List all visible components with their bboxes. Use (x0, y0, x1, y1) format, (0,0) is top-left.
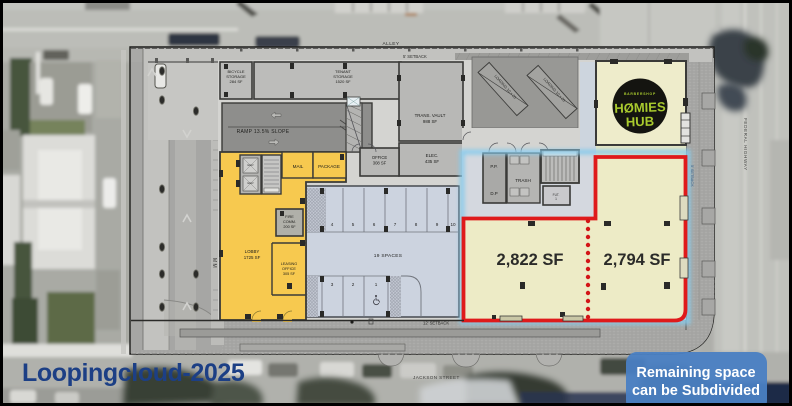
svg-text:OFFICE: OFFICE (372, 155, 388, 160)
svg-text:TRANS. VAULT: TRANS. VAULT (415, 113, 446, 118)
svg-text:308 SF: 308 SF (373, 161, 387, 166)
svg-text:can be Subdivided: can be Subdivided (632, 383, 760, 399)
svg-text:435 SF: 435 SF (425, 159, 439, 164)
svg-text:2,794 SF: 2,794 SF (604, 251, 671, 269)
svg-text:10: 10 (450, 222, 456, 227)
svg-text:MAIL: MAIL (293, 164, 304, 169)
svg-text:OFFICE: OFFICE (282, 267, 296, 271)
svg-text:305 SF: 305 SF (283, 272, 296, 276)
svg-text:5' SETBACK: 5' SETBACK (690, 165, 694, 187)
svg-text:RAMP 13.5% SLOPE: RAMP 13.5% SLOPE (237, 129, 290, 135)
svg-text:COMM.: COMM. (283, 220, 296, 224)
svg-text:1520 SF: 1520 SF (335, 79, 351, 84)
svg-text:200 SF: 200 SF (283, 225, 296, 229)
svg-text:4: 4 (331, 222, 334, 227)
svg-text:ELEV: ELEV (247, 182, 254, 185)
svg-text:ELEC.: ELEC. (426, 153, 439, 158)
svg-text:BARBERSHOP: BARBERSHOP (624, 92, 656, 96)
svg-text:TRASH: TRASH (515, 178, 531, 183)
svg-text:P.P.: P.P. (490, 164, 497, 169)
svg-text:1: 1 (555, 197, 557, 201)
svg-text:7: 7 (394, 222, 397, 227)
svg-text:LOBBY: LOBBY (245, 249, 260, 254)
svg-text:988 SF: 988 SF (423, 119, 437, 124)
svg-text:Loopingcloud-2025: Loopingcloud-2025 (22, 359, 245, 387)
svg-text:M M: M M (211, 258, 217, 268)
svg-text:D.P: D.P (490, 191, 497, 196)
svg-text:6: 6 (373, 222, 376, 227)
svg-text:LEASING: LEASING (281, 262, 298, 266)
svg-text:9: 9 (436, 222, 439, 227)
svg-text:3: 3 (331, 282, 334, 287)
svg-text:JACKSON STREET: JACKSON STREET (413, 375, 460, 380)
svg-text:Remaining space: Remaining space (636, 365, 755, 381)
svg-text:284 SF: 284 SF (230, 79, 243, 84)
svg-text:5: 5 (352, 222, 355, 227)
svg-text:ELEV: ELEV (247, 164, 254, 167)
svg-text:ALLEY: ALLEY (383, 41, 400, 47)
svg-text:HUB: HUB (626, 114, 655, 130)
svg-text:1: 1 (375, 282, 378, 287)
svg-text:8: 8 (415, 222, 418, 227)
svg-text:FIRE: FIRE (285, 215, 294, 219)
svg-text:2,822 SF: 2,822 SF (497, 251, 564, 269)
svg-text:5' SETBACK: 5' SETBACK (403, 54, 427, 59)
svg-text:2: 2 (352, 282, 355, 287)
svg-text:19 SPACES: 19 SPACES (374, 253, 402, 259)
svg-text:FEDERAL HIGHWAY: FEDERAL HIGHWAY (743, 118, 748, 171)
svg-text:12' SETBACK: 12' SETBACK (423, 321, 449, 326)
svg-text:1725 SF: 1725 SF (244, 255, 261, 260)
svg-text:PACKAGE: PACKAGE (318, 164, 340, 169)
